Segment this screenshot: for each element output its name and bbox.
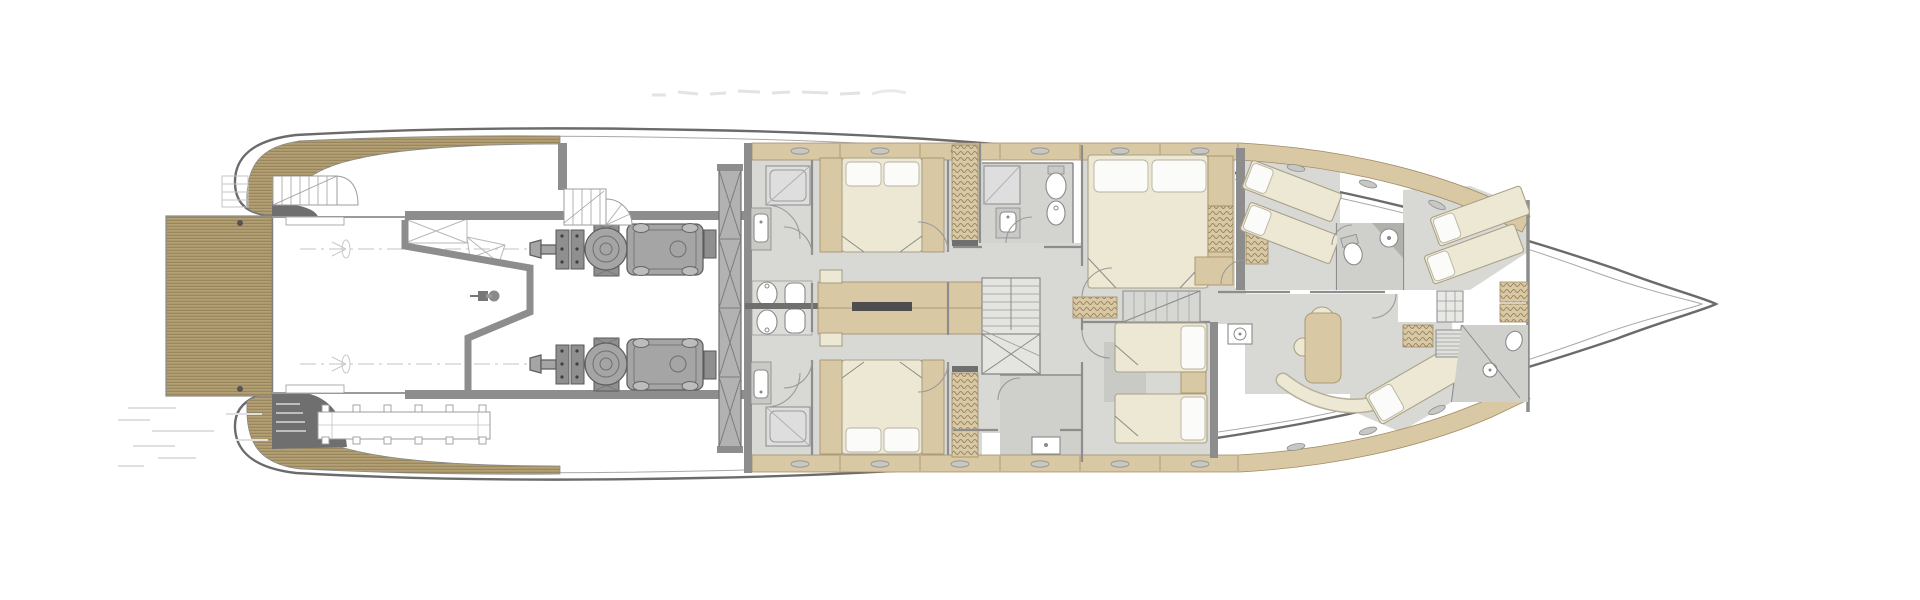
tv-unit [852,302,912,311]
swim-platform [166,216,272,396]
sink [785,309,805,333]
toilet [754,214,768,242]
forepeak [1500,282,1528,322]
main-staircase [982,278,1040,374]
fuel-tank-bulkhead [717,164,743,453]
muffler [704,230,716,258]
shelf-unit [1437,291,1463,322]
crew-bathroom-port [1337,223,1403,290]
toilet [1046,173,1066,199]
deck-plan-canvas [0,0,1920,600]
cleat [237,386,243,392]
muffler [704,351,716,379]
mess-table [1305,313,1341,383]
nightstand [1181,372,1206,393]
port-engine [530,223,703,276]
aft-stairs [273,176,358,205]
washer [1228,324,1252,344]
sink [757,310,777,334]
wardrobe [1500,282,1528,302]
wardrobe [1403,325,1433,347]
garage-door-leaf [286,217,344,225]
centerline-wall [745,303,818,309]
yacht-lower-deck-plan [0,0,1920,600]
guest-cabin-aft-starboard [820,360,978,457]
starboard-engine [530,338,703,391]
toilet [754,370,768,398]
twin-forward-bulkhead [1210,322,1218,458]
crew-stairs [1123,291,1200,322]
washbasin [1000,212,1016,232]
sink [757,282,777,306]
wardrobe [952,373,978,457]
wardrobe [1500,304,1528,322]
utility-room [1032,437,1060,454]
guest-cabin-aft-port [820,145,978,252]
wardrobe [952,145,978,241]
corridor-wardrobe [1073,297,1117,318]
garage-door-leaf [286,385,344,393]
crew-bathroom-starboard [1452,325,1528,402]
upper-deck-ghost-lines [652,91,906,95]
wardrobe [1208,206,1233,252]
tv-cabinet [1195,257,1233,285]
bidet [1047,201,1065,225]
cleat [237,220,243,226]
